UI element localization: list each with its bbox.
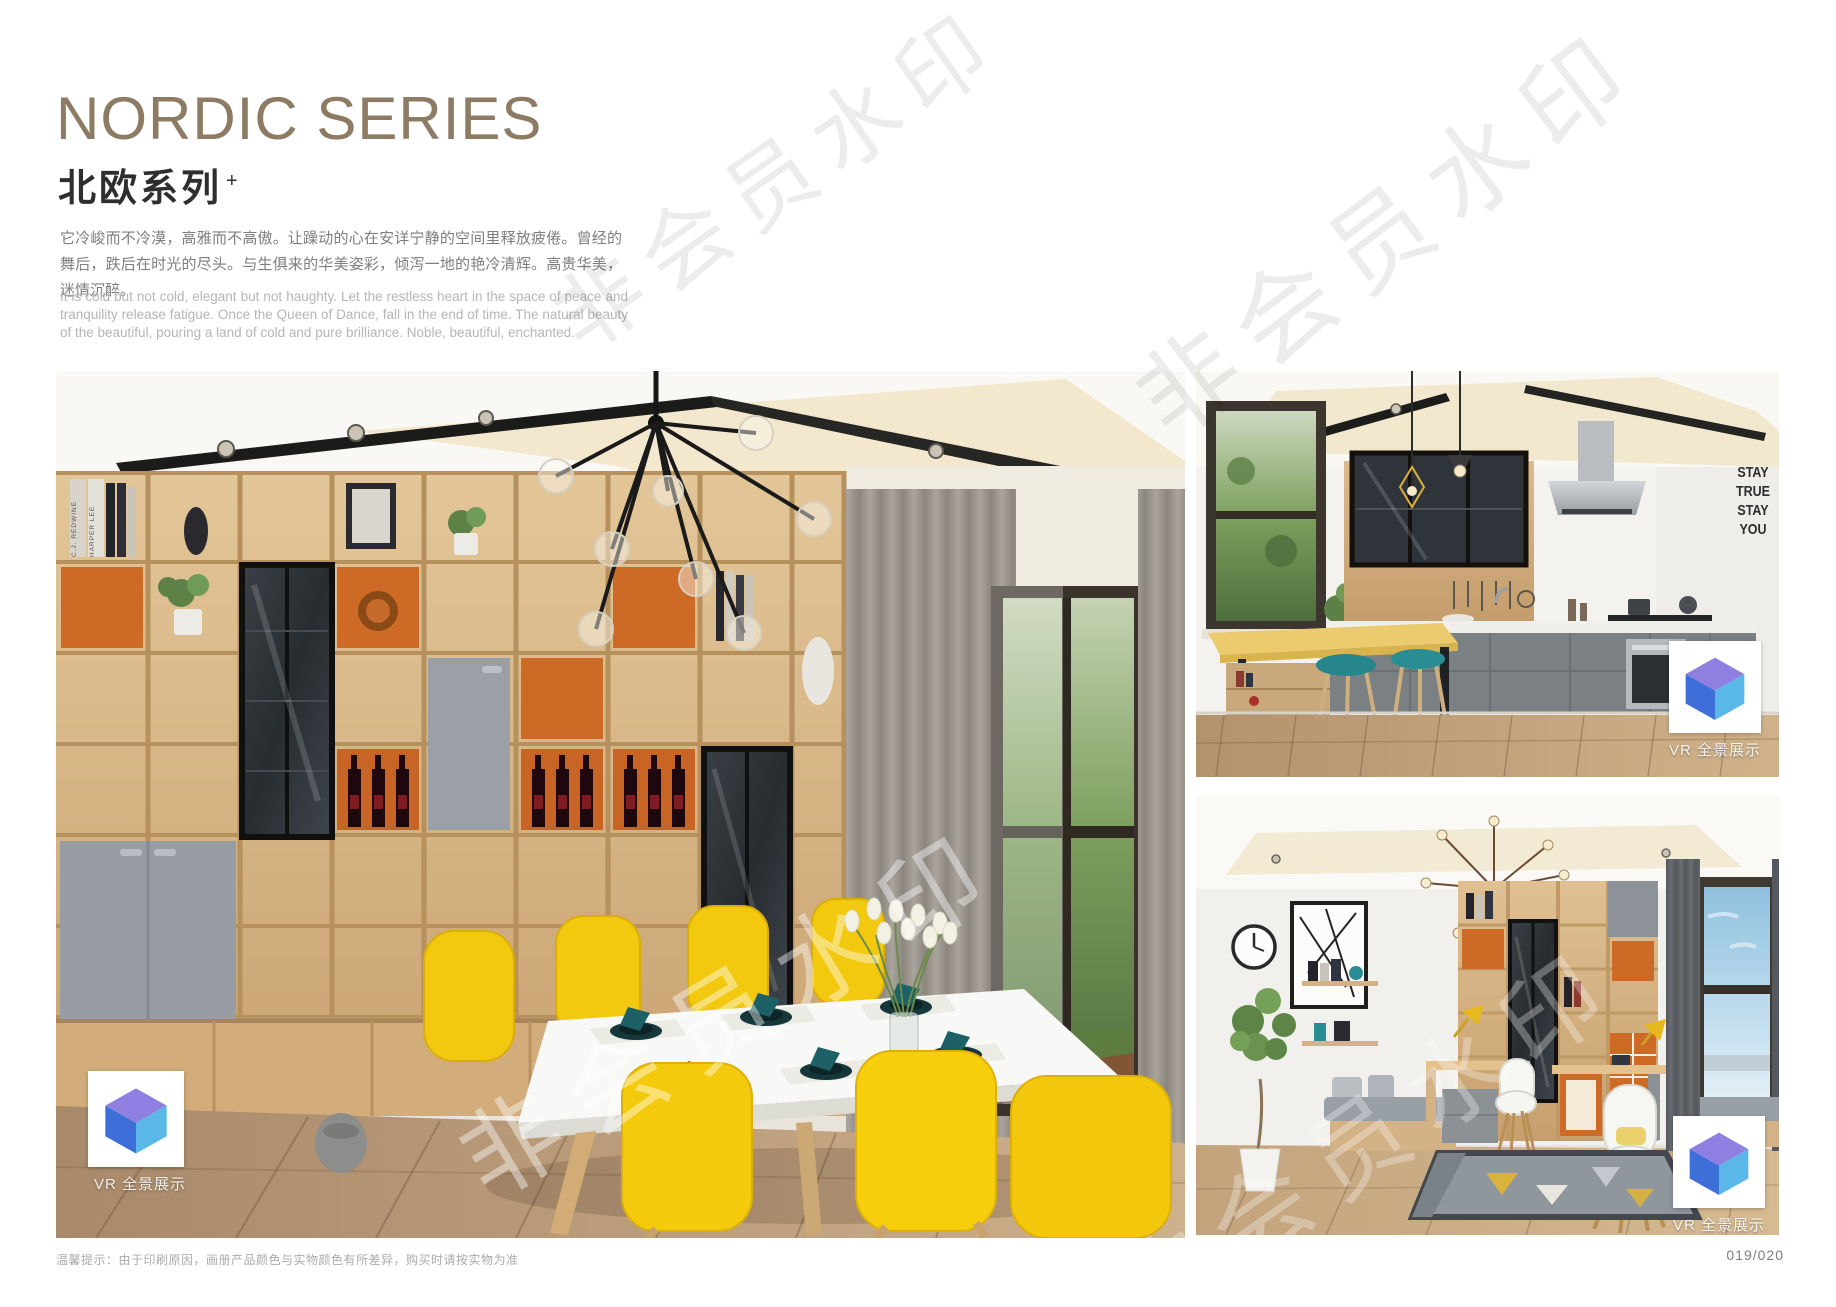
geometric-rug bbox=[1412, 1153, 1698, 1217]
vr-panorama-label: VR 全景展示 bbox=[1673, 1214, 1765, 1235]
wall-art-line: STAY bbox=[1730, 463, 1776, 482]
vr-cube-icon bbox=[1669, 641, 1761, 733]
footer-print-note: 温馨提示：由于印刷原因，画册产品颜色与实物颜色有所差异，购买时请按实物为准 bbox=[56, 1251, 519, 1268]
wall-art-line: YOU bbox=[1730, 520, 1776, 539]
series-title-cn-text: 北欧系列 bbox=[58, 168, 222, 210]
study-room-photo: VR 全景展示 bbox=[1196, 797, 1779, 1235]
series-title-cn: 北欧系列+ bbox=[58, 170, 241, 208]
wall-clock bbox=[1233, 926, 1275, 968]
book-spine-label: HARPER LEE bbox=[89, 481, 96, 557]
vr-qr-badge-kitchen: VR 全景展示 bbox=[1669, 641, 1761, 760]
study-window bbox=[1666, 859, 1779, 1151]
book-spine-label: C.J. REDWINE bbox=[71, 481, 78, 557]
abstract-art-frame bbox=[1292, 903, 1366, 1007]
wall-art-line: TRUE bbox=[1730, 482, 1776, 501]
kitchen-photo: STAY TRUE STAY YOU VR 全景展示 bbox=[1196, 371, 1779, 777]
vr-panorama-label: VR 全景展示 bbox=[94, 1173, 186, 1194]
vr-qr-badge-study: VR 全景展示 bbox=[1673, 1116, 1765, 1235]
vr-cube-icon bbox=[1673, 1116, 1765, 1208]
dining-room-illustration bbox=[56, 371, 1185, 1238]
description-en: It is cold but not cold, elegant but not… bbox=[60, 288, 628, 342]
qr-code bbox=[1673, 1116, 1765, 1208]
wall-art-stay-true: STAY TRUE STAY YOU bbox=[1730, 463, 1776, 539]
vr-panorama-label: VR 全景展示 bbox=[1669, 739, 1761, 760]
wall-art-line: STAY bbox=[1730, 501, 1776, 520]
series-title-en: NORDIC SERIES bbox=[56, 86, 542, 152]
qr-code bbox=[88, 1071, 184, 1167]
series-title-plus: + bbox=[226, 170, 241, 192]
dining-room-photo: C.J. REDWINE HARPER LEE VR 全景展示 bbox=[56, 371, 1185, 1238]
page-number: 019/020 bbox=[1726, 1247, 1784, 1263]
vr-cube-icon bbox=[88, 1071, 184, 1167]
catalog-page: NORDIC SERIES 北欧系列+ 它冷峻而不冷漠，高雅而不高傲。让躁动的心… bbox=[0, 0, 1836, 1307]
kitchen-upper-cabinet bbox=[1344, 453, 1534, 627]
vr-qr-badge-dining: VR 全景展示 bbox=[88, 1071, 186, 1194]
qr-code bbox=[1669, 641, 1761, 733]
